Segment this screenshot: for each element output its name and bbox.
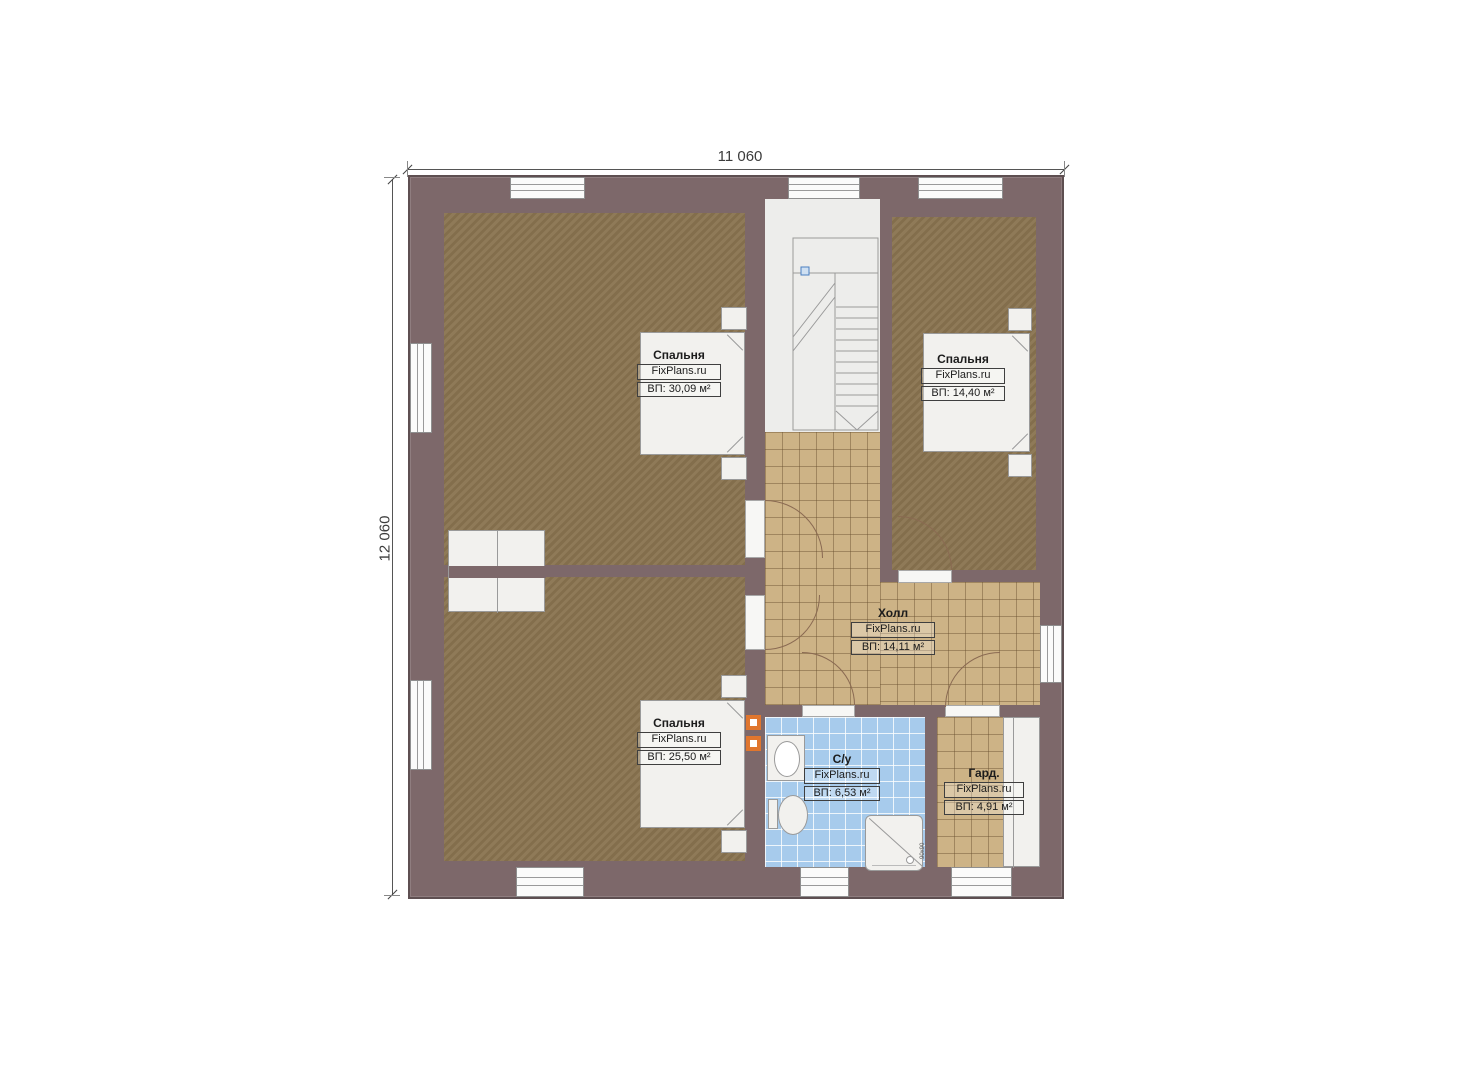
height-dimension-label: 12 060 bbox=[377, 494, 394, 584]
watermark-text: FixPlans.ru bbox=[921, 368, 1005, 383]
room-label-hall: Холл FixPlans.ru ВП: 14,11 м² bbox=[851, 606, 935, 655]
stair-down-arrow-icon bbox=[836, 411, 878, 430]
radiator-icon bbox=[746, 736, 761, 751]
nightstand bbox=[721, 457, 747, 480]
watermark-text: FixPlans.ru bbox=[637, 732, 721, 747]
window bbox=[1040, 625, 1062, 683]
room-label-bedroom-top-left: Спальня FixPlans.ru ВП: 30,09 м² bbox=[637, 348, 721, 397]
room-label-bathroom: С/у FixPlans.ru ВП: 6,53 м² bbox=[804, 752, 880, 801]
window bbox=[516, 867, 584, 897]
extension-line bbox=[407, 161, 408, 177]
door-leaf bbox=[745, 595, 765, 650]
extension-line bbox=[1064, 161, 1065, 177]
window bbox=[788, 177, 860, 199]
room-name: Спальня bbox=[637, 716, 721, 730]
room-area: ВП: 14,40 м² bbox=[921, 386, 1005, 401]
toilet-tank bbox=[768, 799, 778, 829]
room-label-wardrobe: Гард. FixPlans.ru ВП: 4,91 м² bbox=[944, 766, 1024, 815]
building-outline: 90х90 Спальня FixPlans.ru ВП: 30,09 м² С… bbox=[410, 177, 1062, 897]
room-area: ВП: 6,53 м² bbox=[804, 786, 880, 801]
window bbox=[918, 177, 1003, 199]
nightstand bbox=[1008, 454, 1032, 477]
room-label-bedroom-bottom-left: Спальня FixPlans.ru ВП: 25,50 м² bbox=[637, 716, 721, 765]
room-name: Спальня bbox=[921, 352, 1005, 366]
shower-diagonal-line bbox=[869, 818, 923, 867]
shower-size-label: 90х90 bbox=[920, 843, 926, 859]
window bbox=[800, 867, 849, 897]
window bbox=[510, 177, 585, 199]
sink-basin bbox=[774, 741, 800, 777]
room-name: Гард. bbox=[944, 766, 1024, 780]
room-label-bedroom-top-right: Спальня FixPlans.ru ВП: 14,40 м² bbox=[921, 352, 1005, 401]
extension-line bbox=[384, 177, 400, 178]
door-leaf bbox=[745, 500, 765, 558]
blanket-fold bbox=[727, 809, 743, 825]
shower bbox=[865, 815, 923, 871]
room-area: ВП: 4,91 м² bbox=[944, 800, 1024, 815]
window bbox=[410, 680, 432, 770]
window bbox=[410, 343, 432, 433]
height-dimension-line bbox=[392, 179, 393, 895]
room-name: С/у bbox=[804, 752, 880, 766]
room-area: ВП: 30,09 м² bbox=[637, 382, 721, 397]
watermark-text: FixPlans.ru bbox=[637, 364, 721, 379]
door-leaf bbox=[802, 705, 855, 717]
floor-plan-page: 11 060 12 060 bbox=[0, 0, 1474, 1080]
stair-marker-icon bbox=[801, 267, 809, 275]
watermark-text: FixPlans.ru bbox=[944, 782, 1024, 797]
extension-line bbox=[384, 895, 400, 896]
room-name: Спальня bbox=[637, 348, 721, 362]
staircase bbox=[765, 199, 880, 432]
watermark-text: FixPlans.ru bbox=[851, 622, 935, 637]
room-area: ВП: 25,50 м² bbox=[637, 750, 721, 765]
blanket-fold bbox=[727, 436, 743, 452]
width-dimension-label: 11 060 bbox=[600, 148, 880, 165]
door-leaf bbox=[898, 570, 952, 583]
partition-wall-stripe bbox=[449, 566, 546, 578]
nightstand bbox=[721, 675, 747, 698]
wardrobe-unit bbox=[448, 530, 545, 612]
width-dimension-line bbox=[407, 169, 1065, 170]
sink bbox=[767, 735, 805, 781]
room-area: ВП: 14,11 м² bbox=[851, 640, 935, 655]
nightstand bbox=[721, 307, 747, 330]
nightstand bbox=[721, 830, 747, 853]
radiator-icon bbox=[746, 715, 761, 730]
shower-drain bbox=[906, 856, 914, 864]
room-name: Холл bbox=[851, 606, 935, 620]
watermark-text: FixPlans.ru bbox=[804, 768, 880, 783]
shower-edge-line bbox=[872, 865, 916, 866]
nightstand bbox=[1008, 308, 1032, 331]
toilet bbox=[778, 795, 808, 835]
window bbox=[951, 867, 1012, 897]
blanket-fold bbox=[727, 334, 743, 350]
blanket-fold bbox=[1012, 433, 1028, 449]
blanket-fold bbox=[727, 702, 743, 718]
blanket-fold bbox=[1012, 335, 1028, 351]
